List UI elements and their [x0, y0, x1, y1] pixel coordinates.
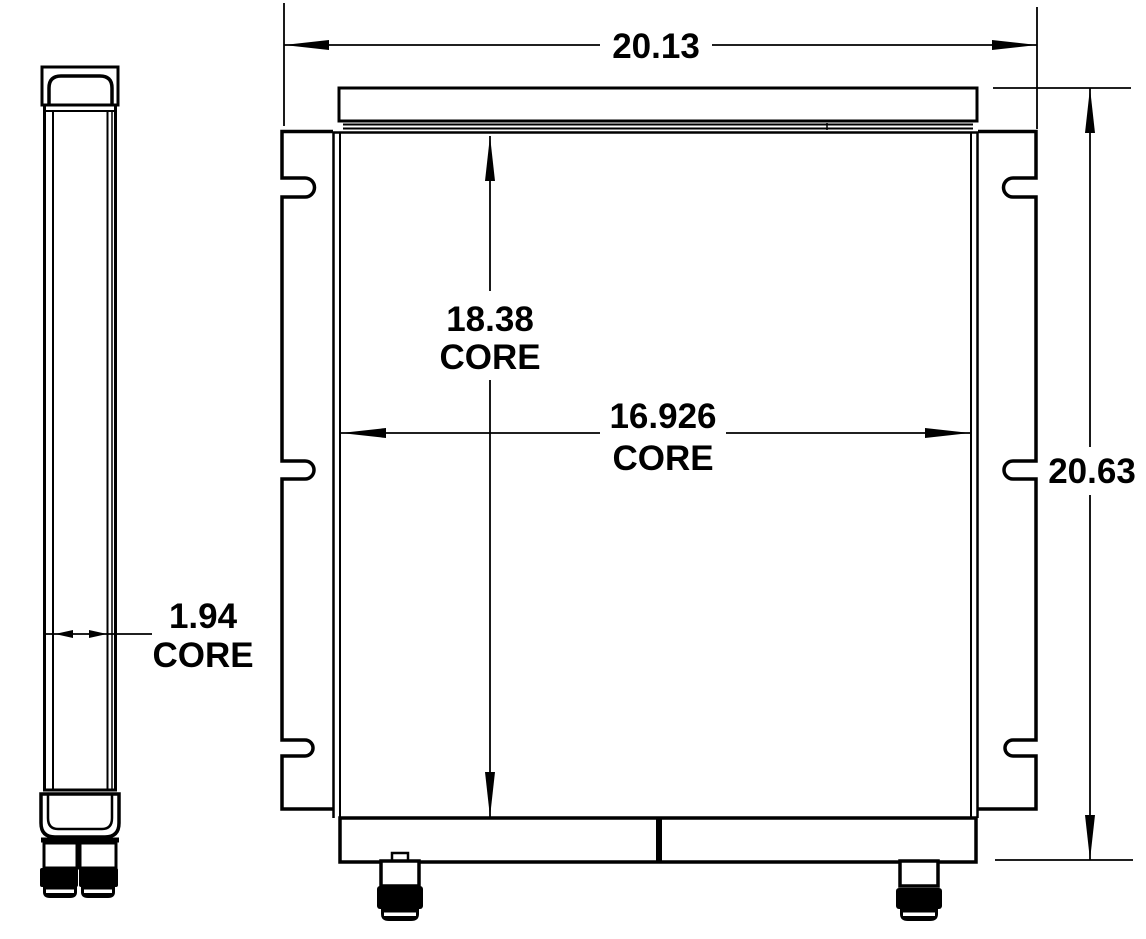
fitting-left-body: [381, 861, 419, 886]
core-width-value: 16.926: [609, 397, 716, 436]
side-fitting-body-rear: [80, 843, 116, 868]
front-view-right-bracket: [978, 132, 1036, 810]
front-top-tank: [339, 88, 977, 121]
front-view-fitting-left: [377, 853, 423, 921]
side-fitting-nut-front: [40, 868, 78, 887]
overall-width-value: 20.13: [612, 27, 700, 66]
arrowhead-left: [284, 40, 329, 50]
front-view-fitting-right: [896, 861, 942, 921]
side-view-bottom-tank: [41, 794, 119, 840]
side-view-core: [45, 105, 116, 790]
side-view: [40, 67, 119, 898]
front-view-left-bracket: [282, 132, 333, 810]
drawing-canvas: 20.13 20.63 18.38 CORE 16.926: [0, 0, 1146, 939]
arrowhead-up: [485, 136, 495, 181]
overall-height-value: 20.63: [1048, 452, 1136, 491]
dimension-core-width: 16.926 CORE: [341, 397, 970, 478]
side-fitting-cap-rear-stripe: [84, 890, 112, 894]
right-bracket-outline: [978, 132, 1036, 810]
side-view-fittings: [40, 843, 118, 898]
arrowhead-down: [1085, 815, 1095, 860]
front-view: [282, 88, 1036, 921]
fitting-left-cap-stripe: [384, 913, 416, 917]
side-top-tank-outer: [42, 67, 118, 105]
fitting-right-body: [900, 861, 938, 886]
core-width-label: CORE: [612, 439, 713, 478]
side-fitting-body-front: [44, 843, 77, 868]
arrowhead-right: [992, 40, 1037, 50]
arrowhead-right: [925, 428, 970, 438]
front-bottom-tank-divider: [656, 818, 662, 862]
core-height-value: 18.38: [446, 300, 534, 339]
side-fitting-nut-rear: [79, 868, 118, 887]
fitting-left-nut: [377, 886, 423, 909]
left-bracket-outline: [282, 132, 333, 810]
core-depth-value: 1.94: [169, 597, 238, 636]
side-bottom-tank-outer: [41, 794, 119, 837]
dimension-core-height: 18.38 CORE: [439, 136, 540, 817]
arrowhead-up: [1085, 88, 1095, 133]
side-fitting-cap-front-stripe: [46, 890, 74, 894]
fitting-right-cap-stripe: [903, 913, 935, 917]
arrowhead-down: [485, 772, 495, 817]
fitting-right-nut: [896, 888, 942, 909]
side-core-outer: [45, 105, 116, 790]
side-view-top-tank: [42, 67, 118, 105]
core-height-label: CORE: [439, 338, 540, 377]
front-view-bottom-tank: [340, 818, 976, 862]
core-depth-label: CORE: [152, 636, 253, 675]
front-view-top-tank: [339, 88, 977, 130]
arrowhead-left: [341, 428, 386, 438]
